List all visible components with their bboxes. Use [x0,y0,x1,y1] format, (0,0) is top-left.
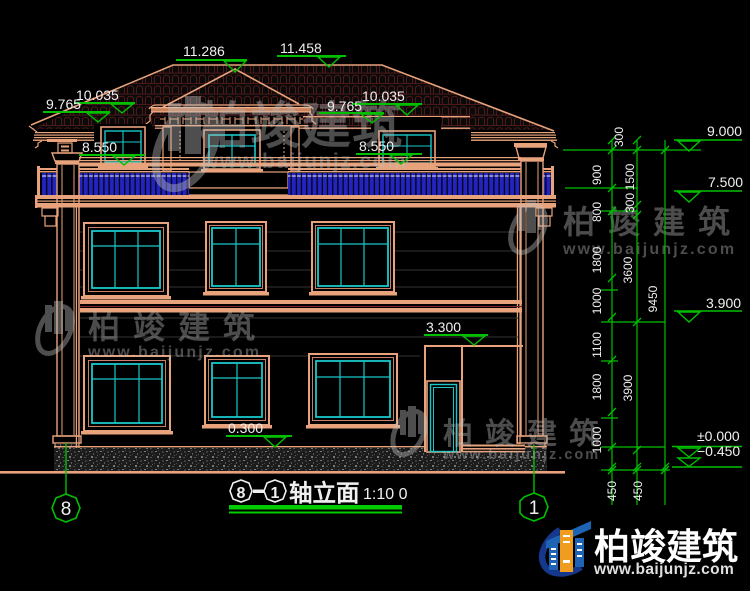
svg-text:www.baijunjz.com: www.baijunjz.com [87,344,261,361]
svg-text:9.765: 9.765 [327,98,362,114]
svg-text:www.baijunjz.com: www.baijunjz.com [593,561,734,578]
svg-text:10.035: 10.035 [362,88,405,104]
svg-text:1500: 1500 [623,163,637,190]
svg-text:3.900: 3.900 [706,295,741,311]
svg-text:10.035: 10.035 [76,87,119,103]
svg-text:3.300: 3.300 [426,319,461,335]
svg-text:1000: 1000 [590,426,604,453]
svg-text:7.500: 7.500 [708,174,743,190]
svg-text:450: 450 [605,481,619,501]
svg-text:8: 8 [61,499,72,520]
svg-text:3900: 3900 [621,374,635,401]
svg-text:1800: 1800 [590,373,604,400]
svg-text:±0.000: ±0.000 [697,428,740,444]
svg-text:1100: 1100 [590,332,604,358]
svg-text:8: 8 [237,485,246,502]
svg-text:−0.450: −0.450 [697,443,740,459]
svg-text:轴立面: 轴立面 [289,479,360,506]
svg-text:www.baijunjz.com: www.baijunjz.com [442,447,600,463]
svg-text:3600: 3600 [621,256,635,283]
svg-text:1:10 0: 1:10 0 [363,486,408,503]
svg-text:900: 900 [590,165,604,185]
svg-text:1: 1 [271,485,280,502]
svg-text:1000: 1000 [590,287,604,314]
svg-text:8.550: 8.550 [359,138,394,154]
svg-text:1800: 1800 [590,246,604,273]
svg-text:11.458: 11.458 [280,40,322,56]
svg-text:9.000: 9.000 [707,123,742,139]
svg-text:8.550: 8.550 [82,139,117,155]
svg-text:1: 1 [529,498,540,519]
svg-text:300: 300 [612,127,626,147]
svg-text:11.286: 11.286 [183,43,225,59]
svg-text:450: 450 [631,481,645,501]
svg-text:800: 800 [590,202,604,222]
svg-text:www.baijunjz.com: www.baijunjz.com [562,241,736,258]
svg-text:0.300: 0.300 [228,420,263,436]
svg-text:柏竣建筑: 柏竣建筑 [443,417,611,451]
svg-text:9450: 9450 [646,285,660,312]
svg-text:9.765: 9.765 [46,96,81,112]
svg-text:300: 300 [623,193,637,213]
svg-text:柏竣建筑: 柏竣建筑 [88,309,268,345]
